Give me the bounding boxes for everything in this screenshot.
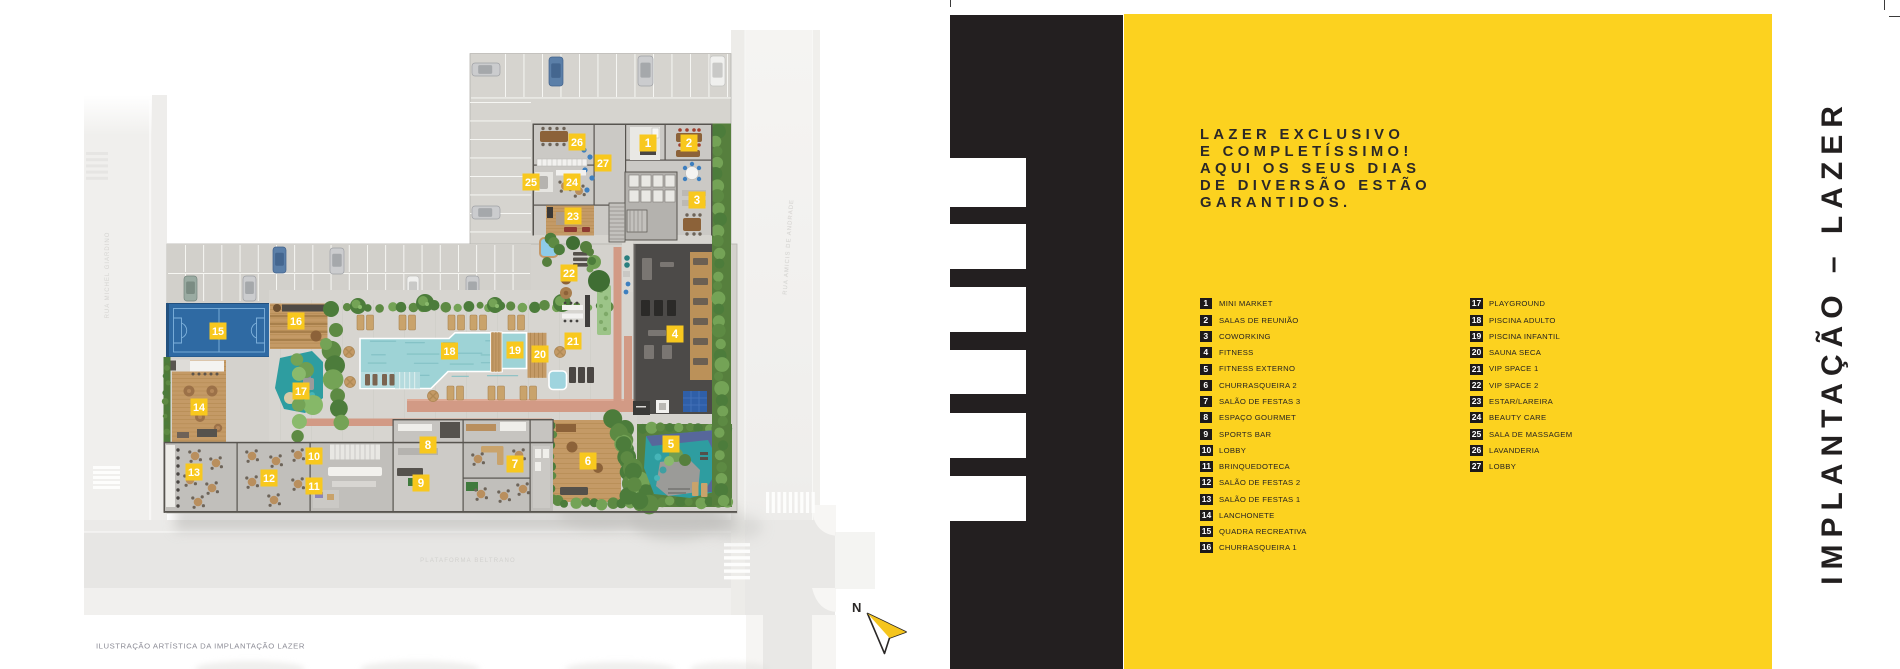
svg-text:24: 24: [566, 177, 578, 189]
svg-text:12: 12: [263, 473, 275, 485]
svg-text:9: 9: [418, 478, 424, 490]
svg-text:RUA MICHEL GIARDINO: RUA MICHEL GIARDINO: [105, 232, 111, 319]
svg-text:3: 3: [694, 195, 700, 207]
svg-text:N: N: [852, 600, 861, 615]
svg-text:6: 6: [585, 456, 591, 468]
svg-text:26: 26: [571, 137, 583, 149]
svg-text:21: 21: [567, 336, 579, 348]
svg-text:PLATAFORMA BELTRANO: PLATAFORMA BELTRANO: [420, 558, 516, 564]
svg-text:7: 7: [512, 459, 518, 471]
svg-text:27: 27: [597, 158, 609, 170]
svg-text:10: 10: [308, 451, 320, 463]
svg-text:13: 13: [188, 467, 200, 479]
svg-text:1: 1: [645, 138, 652, 150]
svg-text:25: 25: [525, 177, 537, 189]
svg-text:20: 20: [534, 349, 546, 361]
svg-text:2: 2: [686, 138, 692, 150]
svg-text:14: 14: [193, 402, 205, 414]
svg-text:18: 18: [443, 346, 455, 358]
svg-text:19: 19: [509, 345, 521, 357]
svg-text:8: 8: [425, 440, 432, 452]
svg-text:11: 11: [308, 481, 319, 493]
svg-text:22: 22: [563, 268, 575, 280]
svg-text:23: 23: [567, 211, 579, 223]
svg-text:16: 16: [290, 316, 302, 328]
svg-text:15: 15: [212, 326, 224, 338]
svg-text:ILUSTRAÇÃO ARTÍSTICA DA IMPLAN: ILUSTRAÇÃO ARTÍSTICA DA IMPLANTAÇÃO LAZE…: [96, 642, 305, 651]
svg-text:4: 4: [672, 329, 679, 341]
svg-text:5: 5: [668, 439, 675, 451]
svg-text:17: 17: [295, 386, 307, 398]
